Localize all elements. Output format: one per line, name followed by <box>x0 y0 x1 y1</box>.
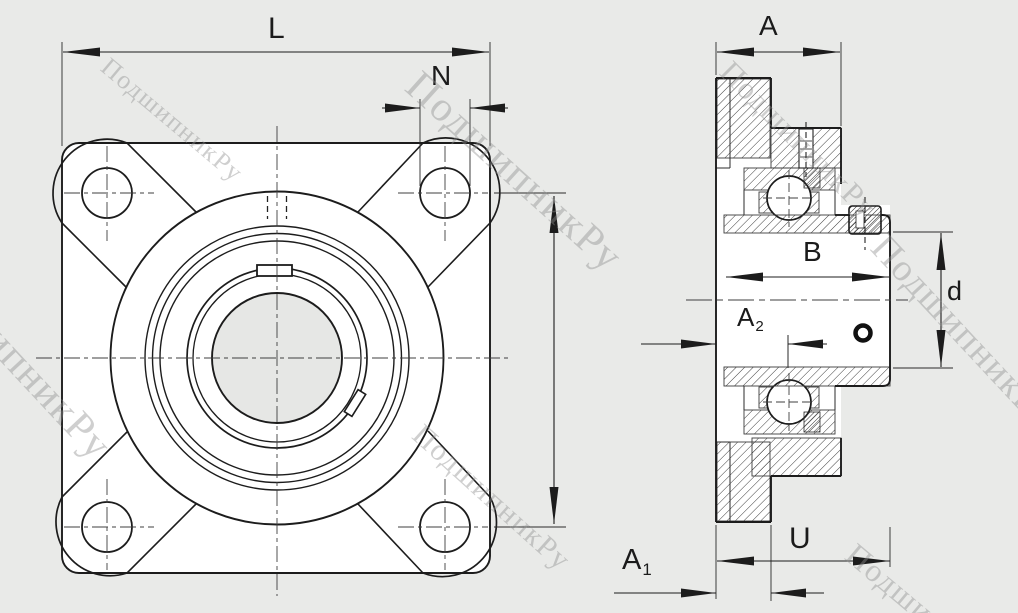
cage-section <box>804 412 820 432</box>
technical-drawing-page: L N A B d U A2 A1 ПодшипникРу ПодшипникР… <box>0 0 1018 613</box>
dimension-label-d: d <box>947 278 962 305</box>
side-screw-hole <box>856 326 871 341</box>
dimension-label-A1: A1 <box>622 546 652 575</box>
dimension-label-N: N <box>431 62 451 90</box>
dimension-label-A2: A2 <box>737 304 764 330</box>
cage-section <box>804 168 820 188</box>
front-view <box>36 126 512 596</box>
dimension-label-U: U <box>789 524 811 554</box>
dimension-label-B: B <box>803 238 822 266</box>
flange-bearing-unit-drawing <box>0 0 1018 613</box>
dimension-label-A: A <box>759 12 778 40</box>
set-screw-front <box>257 265 292 276</box>
dimension-label-L: L <box>268 14 285 44</box>
section-view <box>686 78 908 522</box>
